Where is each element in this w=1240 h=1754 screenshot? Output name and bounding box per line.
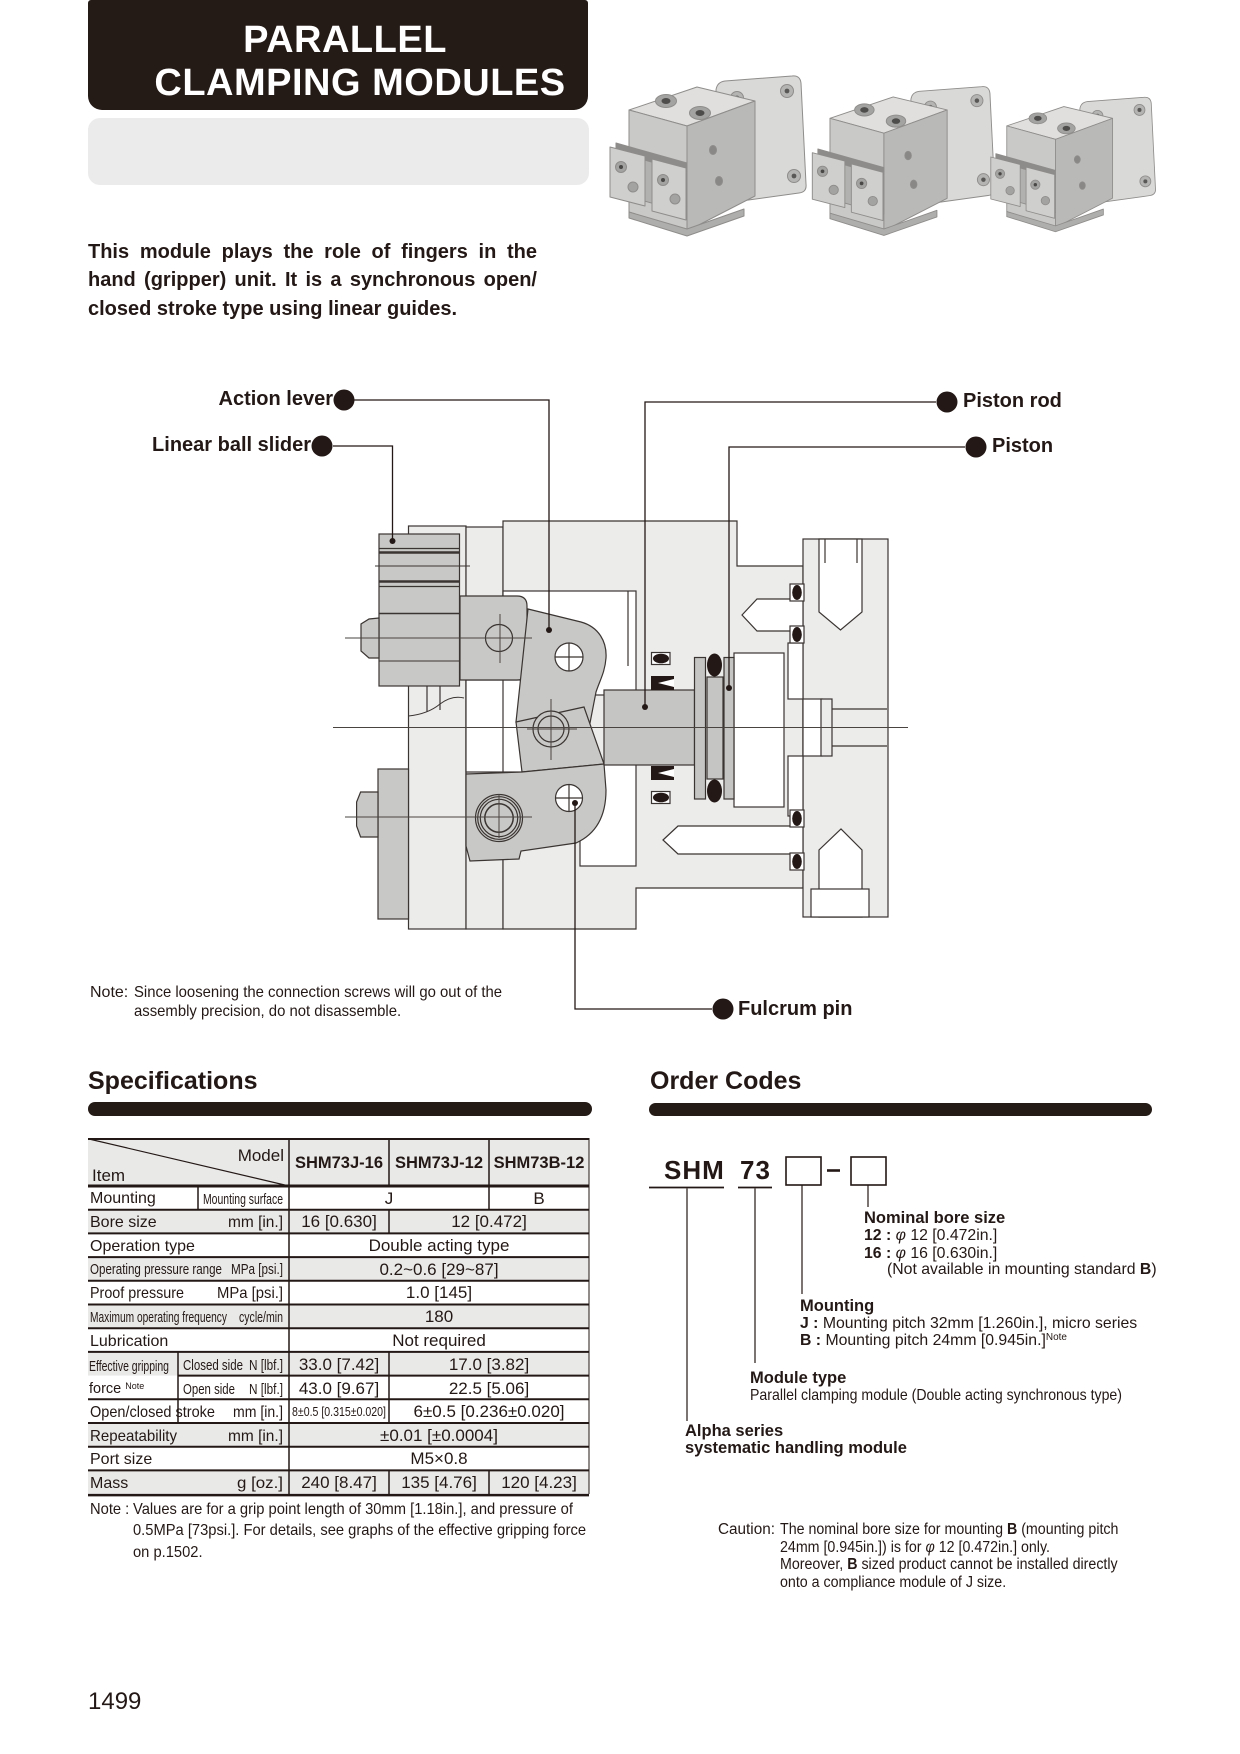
svg-text:SHM73J-16: SHM73J-16	[295, 1154, 383, 1172]
svg-text:±0.01 [±0.0004]: ±0.01 [±0.0004]	[380, 1426, 498, 1445]
svg-text:Maximum operating frequency: Maximum operating frequency	[90, 1310, 228, 1326]
svg-text:73: 73	[740, 1155, 771, 1185]
svg-text:mm [in.]: mm [in.]	[233, 1404, 283, 1421]
svg-text:Module type: Module type	[750, 1369, 846, 1387]
svg-text:Parallel clamping module (Doub: Parallel clamping module (Double acting …	[750, 1387, 1122, 1404]
svg-text:135 [4.76]: 135 [4.76]	[401, 1473, 477, 1492]
svg-text:Mounting surface: Mounting surface	[203, 1191, 283, 1208]
svg-text:Mounting: Mounting	[90, 1190, 156, 1207]
svg-text:Operating pressure range: Operating pressure range	[90, 1262, 222, 1278]
svg-text:240 [8.47]: 240 [8.47]	[301, 1473, 377, 1492]
svg-text:SHM: SHM	[664, 1155, 725, 1185]
svg-text:mm [in.]: mm [in.]	[228, 1214, 283, 1231]
svg-text:12 [0.472]: 12 [0.472]	[451, 1212, 527, 1231]
svg-text:33.0 [7.42]: 33.0 [7.42]	[299, 1355, 379, 1374]
svg-text:MPa [psi.]: MPa [psi.]	[217, 1285, 283, 1302]
svg-text:B : Mounting pitch 24mm [0.945: B : Mounting pitch 24mm [0.945in.]Note	[800, 1332, 1067, 1349]
svg-text:Mounting: Mounting	[800, 1297, 874, 1315]
svg-text:Bore size: Bore size	[90, 1214, 157, 1231]
svg-text:M5×0.8: M5×0.8	[410, 1449, 467, 1468]
svg-text:16 [0.630]: 16 [0.630]	[301, 1212, 377, 1231]
svg-text:force Note: force Note	[89, 1381, 144, 1397]
svg-text:Nominal bore size: Nominal bore size	[864, 1209, 1005, 1227]
svg-text:43.0 [9.67]: 43.0 [9.67]	[299, 1379, 379, 1398]
svg-text:SHM73B-12: SHM73B-12	[494, 1154, 585, 1172]
svg-text:Not required: Not required	[392, 1331, 486, 1350]
svg-text:g [oz.]: g [oz.]	[237, 1475, 283, 1492]
svg-text:N [lbf.]: N [lbf.]	[249, 1357, 283, 1374]
svg-text:Proof pressure: Proof pressure	[90, 1285, 184, 1302]
svg-text:SHM73J-12: SHM73J-12	[395, 1154, 483, 1172]
svg-text:(Not available in mounting sta: (Not available in mounting standard B)	[887, 1261, 1157, 1278]
svg-text:systematic handling module: systematic handling module	[685, 1439, 907, 1457]
svg-text:12 : φ 12 [0.472in.]: 12 : φ 12 [0.472in.]	[864, 1227, 997, 1244]
svg-text:17.0 [3.82]: 17.0 [3.82]	[449, 1355, 529, 1374]
svg-text:Lubrication: Lubrication	[90, 1333, 168, 1350]
svg-text:1.0 [145]: 1.0 [145]	[406, 1283, 472, 1302]
svg-text:J: J	[385, 1189, 394, 1208]
svg-text:B: B	[533, 1189, 544, 1208]
svg-text:N [lbf.]: N [lbf.]	[249, 1381, 283, 1398]
svg-text:Repeatability: Repeatability	[90, 1428, 177, 1445]
svg-text:Operation type: Operation type	[90, 1238, 195, 1255]
svg-text:180: 180	[425, 1307, 453, 1326]
svg-text:Double acting type: Double acting type	[369, 1236, 510, 1255]
svg-text:16 : φ 16 [0.630in.]: 16 : φ 16 [0.630in.]	[864, 1245, 997, 1262]
svg-text:cycle/min: cycle/min	[239, 1310, 283, 1326]
svg-text:Item: Item	[92, 1166, 125, 1185]
svg-text:120 [4.23]: 120 [4.23]	[501, 1473, 577, 1492]
svg-text:Mass: Mass	[90, 1475, 128, 1492]
svg-text:J : Mounting pitch 32mm [1.260: J : Mounting pitch 32mm [1.260in.], micr…	[800, 1315, 1137, 1332]
svg-text:Alpha series: Alpha series	[685, 1422, 783, 1440]
svg-text:6±0.5 [0.236±0.020]: 6±0.5 [0.236±0.020]	[414, 1402, 565, 1421]
svg-text:Port size: Port size	[90, 1451, 152, 1468]
svg-text:Model: Model	[238, 1146, 284, 1165]
svg-text:Open/closed stroke: Open/closed stroke	[90, 1404, 215, 1421]
svg-text:Open side: Open side	[183, 1381, 235, 1398]
svg-text:22.5 [5.06]: 22.5 [5.06]	[449, 1379, 529, 1398]
svg-text:8±0.5 [0.315±0.020]: 8±0.5 [0.315±0.020]	[292, 1404, 386, 1419]
svg-text:Closed side: Closed side	[183, 1357, 243, 1374]
svg-text:mm [in.]: mm [in.]	[228, 1428, 283, 1445]
svg-text:0.2~0.6 [29~87]: 0.2~0.6 [29~87]	[379, 1260, 498, 1279]
svg-text:MPa [psi.]: MPa [psi.]	[231, 1262, 283, 1278]
svg-text:Effective gripping: Effective gripping	[89, 1359, 169, 1375]
